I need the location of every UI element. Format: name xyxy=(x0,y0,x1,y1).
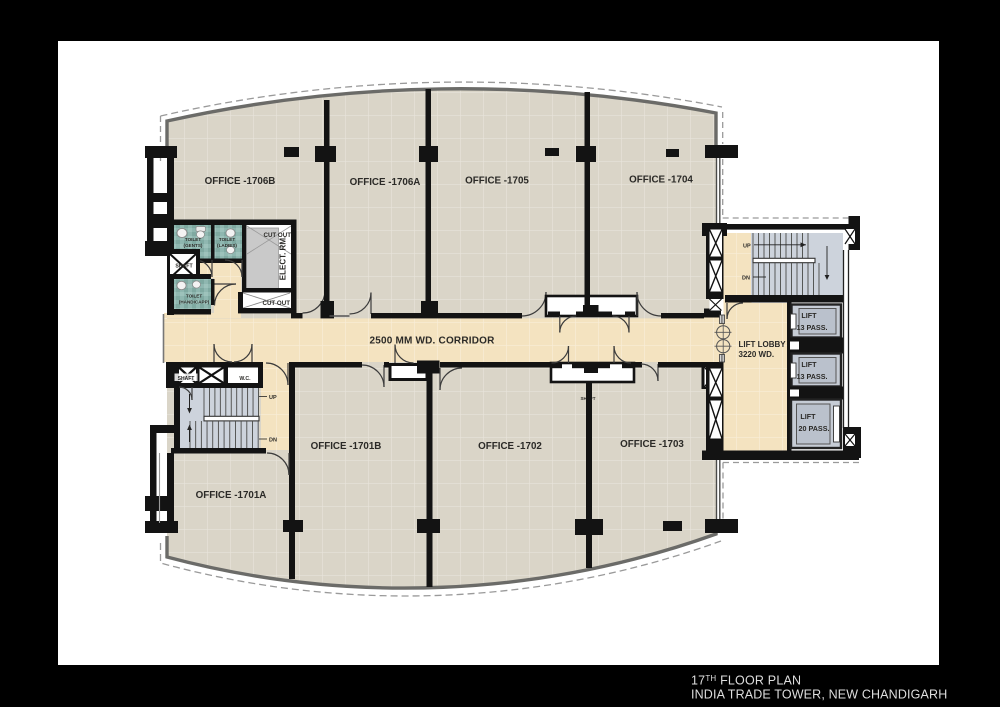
svg-text:20 PASS.: 20 PASS. xyxy=(798,424,829,433)
svg-text:INDIA TRADE TOWER, NEW CHANDIG: INDIA TRADE TOWER, NEW CHANDIGARH xyxy=(691,688,947,702)
svg-text:SHAFT: SHAFT xyxy=(178,376,195,382)
svg-text:DN: DN xyxy=(742,276,750,282)
svg-text:3220 WD.: 3220 WD. xyxy=(739,350,775,359)
svg-text:SHAFT: SHAFT xyxy=(175,264,193,270)
svg-text:LIFT: LIFT xyxy=(801,311,817,320)
svg-text:UP: UP xyxy=(269,395,277,401)
svg-text:OFFICE -1702: OFFICE -1702 xyxy=(478,441,542,452)
svg-text:LIFT: LIFT xyxy=(800,412,816,421)
svg-text:TOILET: TOILET xyxy=(186,294,202,299)
svg-text:OFFICE -1706B: OFFICE -1706B xyxy=(205,176,276,187)
svg-text:LIFT LOBBY: LIFT LOBBY xyxy=(739,340,787,349)
svg-text:DN: DN xyxy=(269,438,277,444)
svg-text:13 PASS.: 13 PASS. xyxy=(796,323,827,332)
svg-text:2500 MM WD. CORRIDOR: 2500 MM WD. CORRIDOR xyxy=(369,336,495,347)
svg-text:TOILET: TOILET xyxy=(219,237,235,242)
svg-text:13 PASS.: 13 PASS. xyxy=(796,372,827,381)
svg-text:W.C.: W.C. xyxy=(239,376,251,382)
svg-text:ELECT. RM.: ELECT. RM. xyxy=(279,236,288,280)
svg-text:OFFICE -1705: OFFICE -1705 xyxy=(465,176,529,187)
svg-text:CUT OUT: CUT OUT xyxy=(263,300,291,307)
svg-text:OFFICE -1701B: OFFICE -1701B xyxy=(311,441,382,452)
svg-text:(LADIES): (LADIES) xyxy=(217,243,237,248)
svg-text:(HANDICAPP): (HANDICAPP) xyxy=(179,300,210,305)
svg-text:(GENTS): (GENTS) xyxy=(184,243,203,248)
svg-text:OFFICE -1703: OFFICE -1703 xyxy=(620,439,684,450)
svg-text:OFFICE -1704: OFFICE -1704 xyxy=(629,175,693,186)
svg-text:OFFICE -1701A: OFFICE -1701A xyxy=(196,490,267,501)
svg-text:OFFICE -1706A: OFFICE -1706A xyxy=(350,177,421,188)
svg-text:TOILET: TOILET xyxy=(185,237,201,242)
svg-text:LIFT: LIFT xyxy=(801,360,817,369)
svg-text:UP: UP xyxy=(743,244,751,250)
